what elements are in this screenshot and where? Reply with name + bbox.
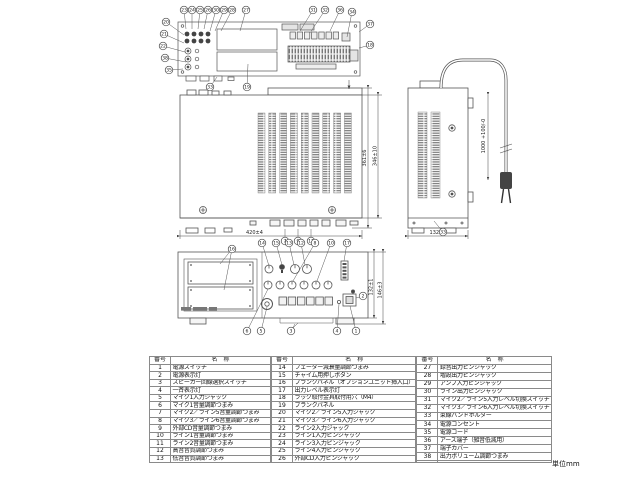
part-name: ライン1音量調節つまみ <box>171 432 271 440</box>
callout-number: 14 <box>259 241 265 247</box>
callout-number: 2 <box>362 294 365 300</box>
speaker-terminal-block <box>288 46 350 62</box>
part-number: 34 <box>417 420 438 428</box>
part-name: マイク3／ライン6入力ジャック <box>293 417 416 425</box>
table-row: 14 フェーダー減衰量調節つまみ <box>272 364 416 372</box>
column-header-name: 名 称 <box>438 357 552 365</box>
part-number: 21 <box>272 417 293 425</box>
callout-number: 17 <box>344 241 350 247</box>
callout-number: 34 <box>349 10 355 16</box>
power-outlet <box>350 50 358 61</box>
part-number: 30 <box>417 388 438 396</box>
callout-number: 38 <box>162 56 168 62</box>
table-row: 6 マイク1音量調節つまみ <box>150 402 271 410</box>
column-header-number: 番号 <box>272 357 293 365</box>
table-row: 24 ライン3入力ピンジャック <box>272 440 416 448</box>
chime-button <box>280 265 285 270</box>
part-number: 38 <box>417 453 438 461</box>
callout-number: 18 <box>367 43 373 49</box>
table-row: 3 スピーカー回線選択スイッチ <box>150 379 271 387</box>
part-number: 36 <box>417 437 438 445</box>
table-row: 28 増設出力ピンジャック <box>417 372 552 380</box>
table-row: 7 マイク2／ライン5音量調節つまみ <box>150 410 271 418</box>
part-number: 3 <box>150 379 171 387</box>
part-number: 29 <box>417 380 438 388</box>
callout-number: 19 <box>244 85 250 91</box>
part-number <box>417 461 438 463</box>
callout-number: 15 <box>273 241 279 247</box>
part-name: 電源コード <box>438 428 552 436</box>
callout-number: 33 <box>207 85 213 91</box>
table-row: 1 電源スイッチ <box>150 364 271 372</box>
part-number: 4 <box>150 387 171 395</box>
part-number: 16 <box>272 379 293 387</box>
part-name: スピーカー回線選択スイッチ <box>171 379 271 387</box>
parts-table: 番号 名 称 1 電源スイッチ 2 電源表示灯 3 スピーカー回線選択スイッチ <box>149 356 552 463</box>
model-label <box>181 307 217 311</box>
part-number: 2 <box>150 372 171 380</box>
part-number: 31 <box>417 396 438 404</box>
part-name: 低音音質調節つまみ <box>171 455 271 463</box>
part-number: 5 <box>150 394 171 402</box>
part-number: 9 <box>150 425 171 433</box>
part-name: ライン2音量調節つまみ <box>171 440 271 448</box>
side-view <box>408 60 512 233</box>
table-row: 20 マイク2／ライン5入力ジャック <box>272 410 416 418</box>
dimension-label: 361±6 <box>362 150 368 167</box>
table-row: 33 束線バンドホルダー <box>417 412 552 420</box>
callout-number: 4 <box>336 329 339 335</box>
part-number: 10 <box>150 432 171 440</box>
dimension-label: 1000 +100/-0 <box>481 119 487 154</box>
table-row: 2 電源表示灯 <box>150 372 271 380</box>
column-header-number: 番号 <box>417 357 438 365</box>
callout-number: 26 <box>205 8 211 14</box>
dimension-label: 132±1 <box>369 279 375 296</box>
table-row: 16 ブランクパネル（オプションユニット挿入口） <box>272 379 416 387</box>
table-row: 5 マイク1入力ジャック <box>150 394 271 402</box>
callout-number: 6 <box>246 329 249 335</box>
table-row: 9 外部CD音量調節つまみ <box>150 425 271 433</box>
table-row: 29 アンプ入力ピンジャック <box>417 380 552 388</box>
power-plug <box>500 172 512 189</box>
top-view <box>180 80 362 233</box>
table-row: 19 ブランクパネル <box>272 402 416 410</box>
part-name: 出力レベル表示灯 <box>293 387 416 395</box>
part-name: 増設出力ピンジャック <box>438 372 552 380</box>
table-row: 37 端子カバー <box>417 445 552 453</box>
part-name: 出力ボリューム調節つまみ <box>438 453 552 461</box>
part-number: 19 <box>272 402 293 410</box>
table-row: 22 ライン2入力ジャック <box>272 425 416 433</box>
callout-number: 12 <box>298 241 304 247</box>
part-number: 6 <box>150 402 171 410</box>
part-number: 24 <box>272 440 293 448</box>
table-row: 15 チャイム用押しボタン <box>272 372 416 380</box>
callout-number: 20 <box>163 20 169 26</box>
callout-number: 5 <box>260 329 263 335</box>
callout-number: 10 <box>328 241 334 247</box>
part-number: 25 <box>272 447 293 455</box>
column-header-name: 名 称 <box>171 357 271 365</box>
part-name: チャイム用押しボタン <box>293 372 416 380</box>
part-name: 電源スイッチ <box>171 364 271 372</box>
dimension-label: 420±4 <box>246 230 263 236</box>
parts-table-group-3: 番号 名 称 27 録音出力ピンジャック 28 増設出力ピンジャック 29 アン… <box>416 356 552 463</box>
part-number: 17 <box>272 387 293 395</box>
table-row: 23 ライン1入力ピンジャック <box>272 432 416 440</box>
part-name: マイク1入力ジャック <box>171 394 271 402</box>
column-header-name: 名 称 <box>293 357 416 365</box>
part-name <box>438 461 552 463</box>
part-number: 13 <box>150 455 171 463</box>
table-row: 32 マイク3／ライン6入力レベル切換スイッチ <box>417 404 552 412</box>
table-row: 25 ライン4入力ピンジャック <box>272 447 416 455</box>
callout-number: 23 <box>181 8 187 14</box>
callout-number: 1 <box>355 329 358 335</box>
part-name: アンプ入力ピンジャック <box>438 380 552 388</box>
part-number: 28 <box>417 372 438 380</box>
table-row: 21 マイク3／ライン6入力ジャック <box>272 417 416 425</box>
table-row: 18 ラック取付金具取付用穴（M4） <box>272 394 416 402</box>
part-name: 束線バンドホルダー <box>438 412 552 420</box>
part-name: マイク3／ライン6入力レベル切換スイッチ <box>438 404 552 412</box>
table-row: 26 外部CD入力ピンジャック <box>272 455 416 463</box>
table-row: 17 出力レベル表示灯 <box>272 387 416 395</box>
table-row: 30 ライン出力ピンジャック <box>417 388 552 396</box>
dimension-drawing: 420±4 361±6 346±10 132±1 1000 +100/-0 13… <box>0 0 640 352</box>
table-row: 13 低音音質調節つまみ <box>150 455 271 463</box>
part-number: 18 <box>272 394 293 402</box>
parts-table-group-2: 番号 名 称 14 フェーダー減衰量調節つまみ 15 チャイム用押しボタン 16… <box>271 356 416 463</box>
part-number: 33 <box>417 412 438 420</box>
part-name: ブランクパネル（オプションユニット挿入口） <box>293 379 416 387</box>
table-row: 35 電源コード <box>417 428 552 436</box>
callout-number: 29 <box>221 8 227 14</box>
table-row: 38 出力ボリューム調節つまみ <box>417 453 552 461</box>
callout-number: 32 <box>322 8 328 14</box>
callout-number: 21 <box>161 32 167 38</box>
part-name: マイク3／ライン6音量調節つまみ <box>171 417 271 425</box>
part-number: 11 <box>150 440 171 448</box>
part-number: 15 <box>272 372 293 380</box>
part-number: 32 <box>417 404 438 412</box>
callout-number: 24 <box>189 8 195 14</box>
part-name: 高音音質調節つまみ <box>171 447 271 455</box>
callout-number: 13 <box>286 241 292 247</box>
part-number: 26 <box>272 455 293 463</box>
part-name: 電源表示灯 <box>171 372 271 380</box>
callout-number: 25 <box>197 8 203 14</box>
rear-panel-view <box>178 22 360 81</box>
unit-label: 単位mm <box>552 459 580 469</box>
table-row <box>417 461 552 463</box>
column-header-number: 番号 <box>150 357 171 365</box>
callout-number: 16 <box>229 247 235 253</box>
table-row: 10 ライン1音量調節つまみ <box>150 432 271 440</box>
part-name: 一斉表示灯 <box>171 387 271 395</box>
callout-number: 3 <box>290 329 293 335</box>
part-name: ライン2入力ジャック <box>293 425 416 433</box>
part-number: 35 <box>417 428 438 436</box>
part-number: 22 <box>272 425 293 433</box>
callout-number: 33 <box>440 230 446 236</box>
dimension-label: 146±3 <box>378 282 384 299</box>
callout-number: 28 <box>229 8 235 14</box>
part-name: マイク1音量調節つまみ <box>171 402 271 410</box>
parts-table-group-1: 番号 名 称 1 電源スイッチ 2 電源表示灯 3 スピーカー回線選択スイッチ <box>149 356 271 463</box>
part-name: ライン4入力ピンジャック <box>293 447 416 455</box>
part-name: 外部CD音量調節つまみ <box>171 425 271 433</box>
callout-number: 22 <box>160 44 166 50</box>
part-name: マイク2／ライン5入力レベル切換スイッチ <box>438 396 552 404</box>
callout-number: 27 <box>243 8 249 14</box>
part-name: 外部CD入力ピンジャック <box>293 455 416 463</box>
part-number: 37 <box>417 445 438 453</box>
terminal-row <box>290 32 339 39</box>
part-name: 録音出力ピンジャック <box>438 364 552 372</box>
part-number: 8 <box>150 417 171 425</box>
part-name: ラック取付金具取付用穴（M4） <box>293 394 416 402</box>
part-name: ライン3入力ピンジャック <box>293 440 416 448</box>
power-indicator <box>351 290 354 293</box>
part-number: 7 <box>150 410 171 418</box>
callout-number: 36 <box>337 8 343 14</box>
part-name: マイク2／ライン5入力ジャック <box>293 410 416 418</box>
callout-number: 31 <box>310 8 316 14</box>
part-name: ライン1入力ピンジャック <box>293 432 416 440</box>
part-name: ライン出力ピンジャック <box>438 388 552 396</box>
table-row: 11 ライン2音量調節つまみ <box>150 440 271 448</box>
table-row: 8 マイク3／ライン6音量調節つまみ <box>150 417 271 425</box>
callout-number: 30 <box>213 8 219 14</box>
table-row: 4 一斉表示灯 <box>150 387 271 395</box>
part-name: アース端子（雑音低減用） <box>438 437 552 445</box>
part-number: 20 <box>272 410 293 418</box>
part-name: 端子カバー <box>438 445 552 453</box>
callout-number: 35 <box>166 68 172 74</box>
part-name: ブランクパネル <box>293 402 416 410</box>
part-name: フェーダー減衰量調節つまみ <box>293 364 416 372</box>
part-number: 27 <box>417 364 438 372</box>
table-row: 36 アース端子（雑音低減用） <box>417 437 552 445</box>
callout-number: 8 <box>314 241 317 247</box>
table-row: 27 録音出力ピンジャック <box>417 364 552 372</box>
table-row: 34 電源コンセント <box>417 420 552 428</box>
part-number: 23 <box>272 432 293 440</box>
part-number: 1 <box>150 364 171 372</box>
part-name: マイク2／ライン5音量調節つまみ <box>171 410 271 418</box>
part-number: 12 <box>150 447 171 455</box>
dimension-label: 346±10 <box>373 146 379 166</box>
part-name: 電源コンセント <box>438 420 552 428</box>
front-panel-view <box>178 252 368 328</box>
vent-slots <box>258 113 351 193</box>
callout-number: 37 <box>367 22 373 28</box>
table-row: 31 マイク2／ライン5入力レベル切換スイッチ <box>417 396 552 404</box>
table-row: 12 高音音質調節つまみ <box>150 447 271 455</box>
part-number: 14 <box>272 364 293 372</box>
